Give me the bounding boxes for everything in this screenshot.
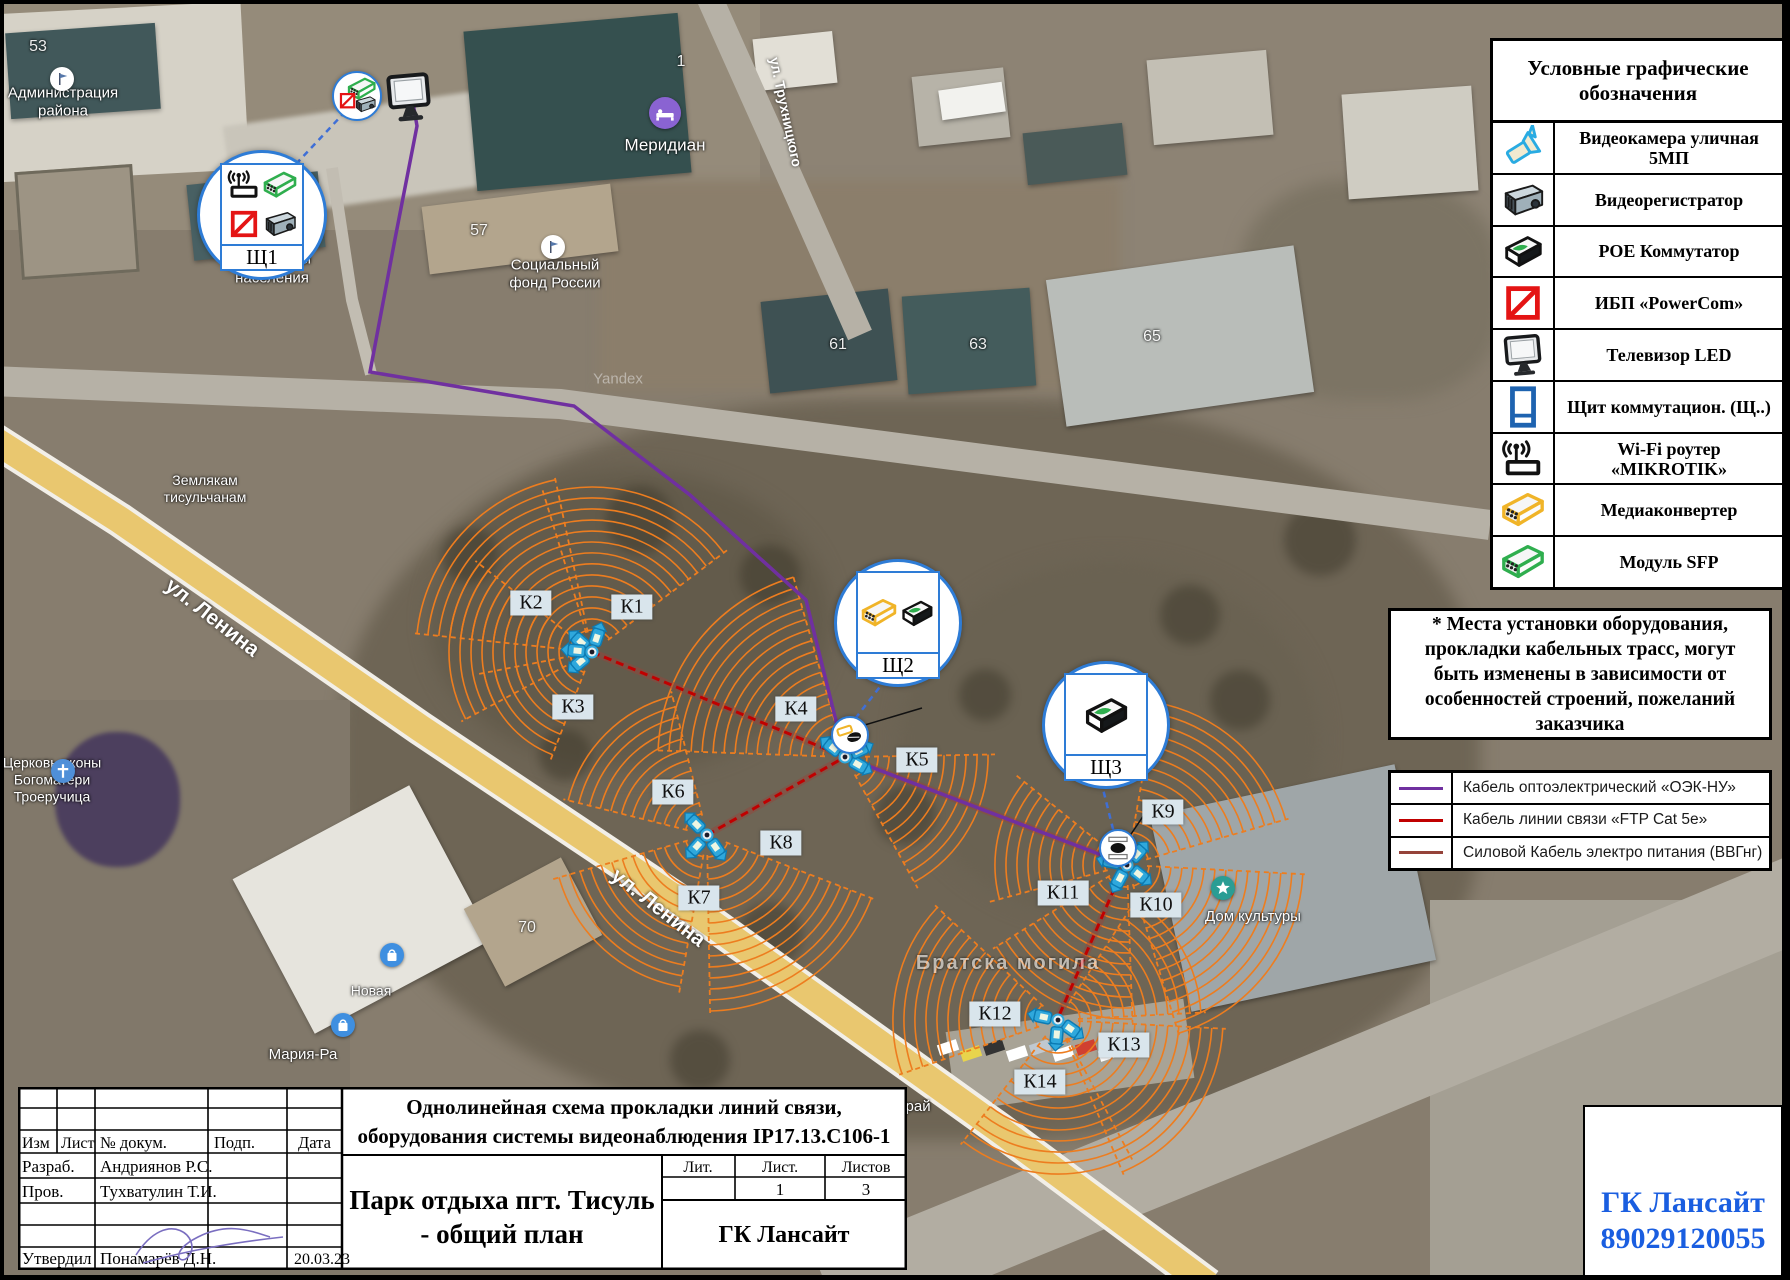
wifi-router-icon bbox=[1493, 434, 1555, 484]
panel-label: Щ2 bbox=[858, 652, 938, 677]
ups-icon bbox=[226, 206, 262, 242]
legend-box: Условные графические обозначения Видеока… bbox=[1490, 38, 1786, 590]
panel-callout-box: Щ3 bbox=[1064, 673, 1148, 781]
legend-row-label: Видеорегистратор bbox=[1555, 175, 1783, 225]
title-block-text: 20.03.23 bbox=[294, 1251, 350, 1268]
title-block-text: - общий план bbox=[420, 1219, 583, 1249]
title-block-text: № докум. bbox=[100, 1133, 167, 1152]
contact-company: ГК Лансайт bbox=[1601, 1185, 1765, 1221]
panel-callout-box: Щ1 bbox=[220, 163, 304, 271]
legend-row: Медиаконвертер bbox=[1493, 485, 1783, 537]
legend-row: Щит коммутацион. (Щ..) bbox=[1493, 382, 1783, 434]
title-block-text: Утвердил bbox=[22, 1249, 92, 1268]
camera-label-К13: К13 bbox=[1098, 1033, 1149, 1058]
cable-legend-row: Силовой Кабель электро питания (ВВГнг) bbox=[1391, 838, 1769, 868]
legend-row: Wi-Fi роутер «MIKROTIK» bbox=[1493, 434, 1783, 486]
legend-row: РОЕ Коммутатор bbox=[1493, 227, 1783, 279]
sfp-icon bbox=[262, 167, 298, 203]
cable-legend-label: Кабель оптоэлектрический «ОЭК-НУ» bbox=[1453, 773, 1769, 803]
title-block-text: Дата bbox=[298, 1133, 332, 1152]
tv-icon bbox=[1493, 330, 1555, 380]
legend-row-label: Щит коммутацион. (Щ..) bbox=[1555, 382, 1783, 432]
legend-row: Модуль SFP bbox=[1493, 537, 1783, 587]
panel-icons bbox=[222, 165, 302, 244]
contact-phone: 89029120055 bbox=[1601, 1221, 1766, 1257]
title-block-text: Листов bbox=[842, 1159, 891, 1176]
camera-label-К7: К7 bbox=[678, 886, 719, 911]
title-block-text: Парк отдыха пгт. Тисуль bbox=[349, 1185, 654, 1215]
camera-label-К6: К6 bbox=[652, 780, 693, 805]
camera-label-К4: К4 bbox=[775, 697, 816, 722]
title-block-text: 1 bbox=[776, 1180, 785, 1199]
tv-icon bbox=[382, 68, 436, 126]
poe-switch-icon bbox=[1080, 689, 1132, 741]
contact-panel: ГК Лансайт 89029120055 bbox=[1583, 1105, 1783, 1277]
cable-legend-row: Кабель оптоэлектрический «ОЭК-НУ» bbox=[1391, 773, 1769, 805]
camera-label-К11: К11 bbox=[1038, 881, 1089, 906]
cable-swatch bbox=[1391, 838, 1453, 868]
panel-callout-Щ2: Щ2 bbox=[834, 559, 962, 687]
camera-label-К9: К9 bbox=[1142, 800, 1183, 825]
equipment-cluster-marker bbox=[332, 71, 382, 121]
title-block-text: Лист bbox=[61, 1135, 95, 1152]
legend-row: Видеокамера уличная 5МП bbox=[1493, 123, 1783, 175]
dvr-icon bbox=[1493, 175, 1555, 225]
camera-label-К1: К1 bbox=[611, 595, 652, 620]
title-block-text: Лист. bbox=[762, 1159, 798, 1176]
legend-row-label: Видеокамера уличная 5МП bbox=[1555, 123, 1783, 173]
legend-row: ИБП «PowerCom» bbox=[1493, 278, 1783, 330]
poe-drop-marker bbox=[831, 716, 869, 754]
poe-switch-icon bbox=[898, 594, 936, 632]
legend-title: Условные графические обозначения bbox=[1493, 41, 1783, 123]
panel-icon bbox=[1493, 382, 1555, 432]
title-block-text: 3 bbox=[862, 1180, 871, 1199]
camera-label-К2: К2 bbox=[510, 591, 551, 616]
cable-legend-rows: Кабель оптоэлектрический «ОЭК-НУ»Кабель … bbox=[1391, 773, 1769, 868]
poe-drop2-marker bbox=[1099, 829, 1137, 867]
media-converter-icon bbox=[860, 594, 898, 632]
panel-icons bbox=[858, 573, 938, 652]
legend-row-label: Медиаконвертер bbox=[1555, 485, 1783, 535]
title-block-text: Андриянов Р.С. bbox=[100, 1157, 212, 1176]
panel-callout-Щ1: Щ1 bbox=[197, 150, 327, 280]
installation-note: * Места установки оборудования, прокладк… bbox=[1388, 608, 1772, 740]
camera-label-К10: К10 bbox=[1130, 893, 1181, 918]
title-block-text: ГК Лансайт bbox=[719, 1222, 850, 1248]
camera-icon bbox=[1493, 123, 1555, 173]
title-block: ИзмЛист№ докум.Подп.ДатаРазраб.Андриянов… bbox=[18, 1087, 907, 1270]
title-block-grid: ИзмЛист№ докум.Подп.ДатаРазраб.Андриянов… bbox=[18, 1087, 907, 1270]
cable-swatch bbox=[1391, 773, 1453, 803]
cable-legend-row: Кабель линии связи «FTP Cat 5e» bbox=[1391, 805, 1769, 837]
dvr-icon bbox=[262, 206, 298, 242]
title-block-text: Лит. bbox=[683, 1159, 712, 1176]
legend-row-label: Телевизор LED bbox=[1555, 330, 1783, 380]
sfp-icon bbox=[1493, 537, 1555, 587]
legend-row-label: ИБП «PowerCom» bbox=[1555, 278, 1783, 328]
legend-row: Телевизор LED bbox=[1493, 330, 1783, 382]
legend-row-label: РОЕ Коммутатор bbox=[1555, 227, 1783, 277]
title-block-text: оборудования системы видеонаблюдения IP1… bbox=[358, 1124, 891, 1148]
legend-row-label: Wi-Fi роутер «MIKROTIK» bbox=[1555, 434, 1783, 484]
legend-row: Видеорегистратор bbox=[1493, 175, 1783, 227]
title-block-text: Тухватулин Т.И. bbox=[100, 1182, 217, 1201]
cable-legend-box: Кабель оптоэлектрический «ОЭК-НУ»Кабель … bbox=[1388, 770, 1772, 871]
legend-rows: Видеокамера уличная 5МПВидеорегистраторР… bbox=[1493, 123, 1783, 587]
title-block-text: Однолинейная схема прокладки линий связи… bbox=[406, 1095, 842, 1119]
panel-callout-Щ3: Щ3 bbox=[1042, 661, 1170, 789]
title-block-text: Подп. bbox=[214, 1133, 255, 1152]
camera-label-К14: К14 bbox=[1014, 1070, 1065, 1095]
panel-label: Щ3 bbox=[1066, 754, 1146, 779]
cable-swatch bbox=[1391, 805, 1453, 835]
title-block-text: Пров. bbox=[22, 1182, 64, 1201]
camera-label-К5: К5 bbox=[896, 748, 937, 773]
cable-legend-label: Кабель линии связи «FTP Cat 5e» bbox=[1453, 805, 1769, 835]
legend-row-label: Модуль SFP bbox=[1555, 537, 1783, 587]
poe-switch-icon bbox=[1493, 227, 1555, 277]
title-block-text: Изм bbox=[22, 1135, 50, 1152]
camera-label-К12: К12 bbox=[969, 1002, 1020, 1027]
wifi-router-icon bbox=[226, 167, 262, 203]
ups-icon bbox=[1493, 278, 1555, 328]
media-converter-icon bbox=[1493, 485, 1555, 535]
title-block-text: Разраб. bbox=[22, 1157, 75, 1176]
cable-legend-label: Силовой Кабель электро питания (ВВГнг) bbox=[1453, 838, 1769, 868]
panel-callout-box: Щ2 bbox=[856, 571, 940, 679]
drawing-sheet: ул. Ленинаул. Ленинаул. ТрухницкогоАдмин… bbox=[0, 0, 1790, 1280]
panel-icons bbox=[1066, 675, 1146, 754]
panel-label: Щ1 bbox=[222, 244, 302, 269]
camera-label-К8: К8 bbox=[760, 831, 801, 856]
camera-label-К3: К3 bbox=[552, 695, 593, 720]
